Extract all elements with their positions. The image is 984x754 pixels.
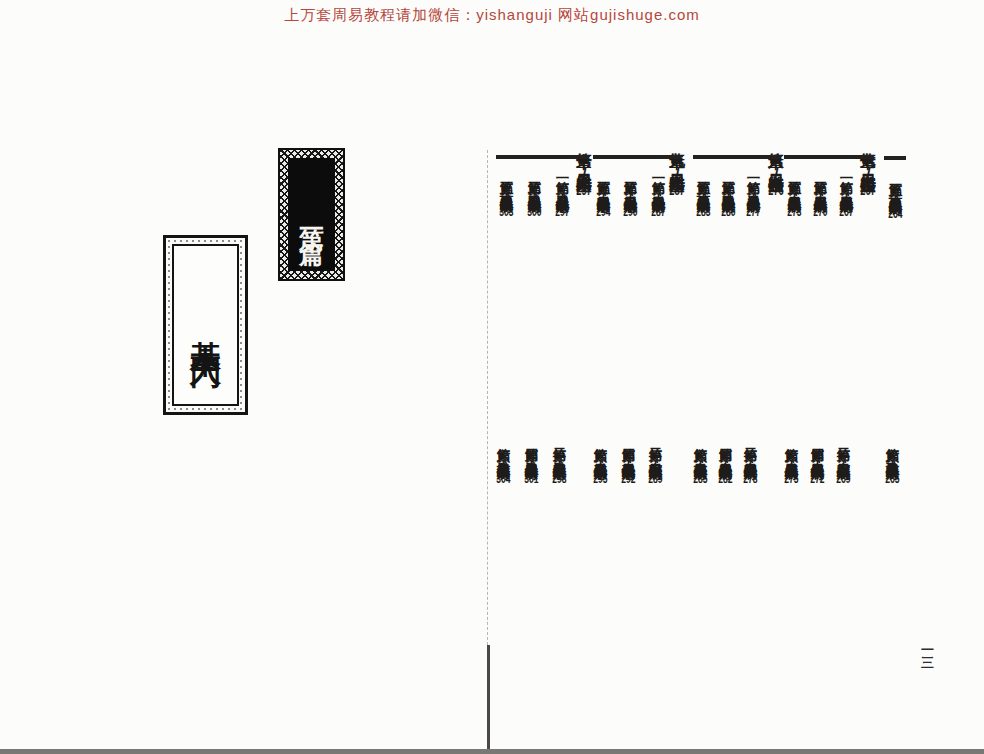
toc-section-column: 第六節己亥日生與十二時辰/265 (882, 437, 902, 485)
entry-label: 第八章 (768, 140, 785, 142)
entry-page-number: 273 (787, 205, 802, 218)
label-title-gap (817, 439, 818, 452)
label-title-gap (895, 174, 896, 187)
basic-intro-title: 基本入門 (190, 310, 221, 340)
toc-section-column: 第六節癸亥日生與十二時辰/304 (493, 437, 513, 485)
toc-section-column: 第一節庚子日生與十二時辰/267 (836, 170, 856, 218)
entry-slash: / (784, 456, 799, 472)
label-title-gap (603, 172, 604, 185)
entry-slash: / (524, 456, 539, 472)
label-title-gap (600, 439, 601, 452)
entry-slash: / (596, 189, 611, 205)
toc-section-column: 第二節壬寅日生與十二時辰/289 (645, 437, 665, 485)
entry-page-number: 292 (621, 472, 636, 485)
entry-label: 第四節 (810, 437, 825, 439)
section-bracket-rule (784, 155, 872, 159)
label-title-gap (700, 439, 701, 452)
entry-label: 第六節 (885, 437, 900, 439)
page-fold-line-bottom (487, 645, 490, 754)
toc-section-column: 第二節癸卯日生與十二時辰/298 (549, 437, 569, 485)
part-one-seal-box: 第一篇 (278, 148, 345, 281)
entry-label: 第一節 (651, 170, 666, 172)
entry-label: 第六節 (593, 437, 608, 439)
label-title-gap (655, 439, 656, 452)
entry-label: 第五節 (888, 172, 903, 174)
promo-header-text: 上万套周易教程请加微信：yishanguji 网站gujishuge.com (0, 6, 984, 25)
toc-section-column: 第五節庚申日生與十二時辰/273 (784, 170, 804, 218)
toc-section-column: 第二節庚寅日生與十二時辰/269 (833, 437, 853, 485)
entry-label: 第五節 (696, 170, 711, 172)
toc-chapter-column: 第九章日元壬水與生時/287 (666, 140, 688, 197)
toc-chapter-column: 第十章日元癸水與生時/297 (573, 140, 595, 197)
label-title-gap (728, 172, 729, 185)
toc-section-column: 第四節壬午日生與十二時辰/292 (618, 437, 638, 485)
entry-slash: / (693, 456, 708, 472)
entry-label: 第九章 (669, 140, 686, 142)
entry-page-number: 278 (743, 472, 758, 485)
label-title-gap (791, 439, 792, 452)
entry-label: 第二節 (648, 437, 663, 439)
part-one-seal-inner: 第一篇 (288, 158, 335, 271)
entry-page-number: 272 (810, 472, 825, 485)
toc-section-column: 第六節庚戌日生與十二時辰/275 (781, 437, 801, 485)
label-title-gap (703, 172, 704, 185)
entry-label: 第三節 (527, 170, 542, 172)
toc-section-column: 第五節辛酉日生與十二時辰/283 (693, 170, 713, 218)
label-title-gap (892, 439, 893, 452)
label-title-gap (562, 172, 563, 185)
entry-page-number: 275 (784, 472, 799, 485)
entry-label: 第六節 (693, 437, 708, 439)
entry-label: 第三節 (623, 170, 638, 172)
entry-page-number: 295 (593, 472, 608, 485)
entry-label: 第三節 (813, 170, 828, 172)
entry-label: 第六節 (496, 437, 511, 439)
carryover-bracket-mark (884, 156, 906, 160)
page-fold-line (487, 150, 488, 645)
entry-slash: / (787, 189, 802, 205)
entry-label: 第四節 (524, 437, 539, 439)
label-title-gap (559, 439, 560, 452)
entry-slash: / (746, 189, 761, 205)
entry-page-number: 280 (721, 205, 736, 218)
entry-slash: / (593, 456, 608, 472)
entry-page-number: 285 (693, 472, 708, 485)
entry-page-number: 270 (813, 205, 828, 218)
basic-intro-box-inner: 基本入門 (172, 244, 239, 406)
entry-page-number: 297 (555, 205, 570, 218)
entry-slash: / (721, 189, 736, 205)
label-title-gap (753, 172, 754, 185)
label-title-gap (630, 172, 631, 185)
entry-page-number: 298 (552, 472, 567, 485)
entry-slash: / (621, 456, 636, 472)
basic-intro-box: 基本入門 (163, 235, 248, 415)
entry-page-number: 267 (860, 183, 876, 197)
entry-page-number: 294 (596, 205, 611, 218)
entry-page-number: 304 (496, 472, 511, 485)
toc-section-column: 第三節辛巳日生與十二時辰/280 (718, 170, 738, 218)
folio-page-number: 一三 (918, 642, 936, 650)
entry-slash: / (839, 189, 854, 205)
entry-slash: / (623, 189, 638, 205)
entry-slash: / (813, 189, 828, 205)
label-title-gap (658, 172, 659, 185)
entry-label: 第五節 (596, 170, 611, 172)
entry-slash: / (576, 165, 593, 183)
label-title-gap (534, 172, 535, 185)
entry-label: 第五節 (499, 170, 514, 172)
entry-slash: / (555, 189, 570, 205)
entry-page-number: 276 (768, 183, 784, 197)
section-bracket-rule (496, 155, 589, 159)
entry-page-number: 300 (527, 205, 542, 218)
label-title-gap (503, 439, 504, 452)
toc-section-column: 第四節庚午日生與十二時辰/272 (807, 437, 827, 485)
label-title-gap (750, 439, 751, 452)
toc-section-column: 第六節辛亥日生與十二時辰/285 (690, 437, 710, 485)
entry-label: 第一節 (746, 170, 761, 172)
entry-label: 第五節 (787, 170, 802, 172)
entry-label: 第四節 (718, 437, 733, 439)
entry-slash: / (768, 165, 785, 183)
label-title-gap (794, 172, 795, 185)
section-bracket-rule (593, 155, 681, 159)
entry-slash: / (888, 191, 903, 207)
entry-slash: / (527, 189, 542, 205)
toc-section-column: 第一節癸丑日生與十二時辰/297 (552, 170, 572, 218)
label-title-gap (820, 172, 821, 185)
entry-label: 第七章 (860, 140, 877, 142)
entry-page-number: 297 (576, 183, 592, 197)
toc-section-column: 第五節癸酉日生與十二時辰/303 (496, 170, 516, 218)
toc-section-column: 第四節辛未日生與十二時辰/282 (715, 437, 735, 485)
entry-label: 第二節 (743, 437, 758, 439)
entry-page-number: 287 (651, 205, 666, 218)
entry-slash: / (743, 456, 758, 472)
entry-slash: / (648, 456, 663, 472)
entry-slash: / (496, 456, 511, 472)
entry-label: 第一節 (555, 170, 570, 172)
entry-page-number: 303 (499, 205, 514, 218)
toc-section-column: 第四節癸未日生與十二時辰/301 (521, 437, 541, 485)
entry-slash: / (669, 165, 686, 183)
toc-section-column: 第六節壬戌日生與十二時辰/295 (590, 437, 610, 485)
entry-slash: / (552, 456, 567, 472)
toc-section-column: 第五節壬申日生與十二時辰/294 (593, 170, 613, 218)
toc-section-column: 第二節辛卯日生與十二時辰/278 (740, 437, 760, 485)
toc-section-column: 第一節壬子日生與十二時辰/287 (648, 170, 668, 218)
entry-label: 第一節 (839, 170, 854, 172)
toc-chapter-column: 第八章日元辛金與生時/276 (765, 140, 787, 197)
entry-slash: / (810, 456, 825, 472)
entry-slash: / (885, 456, 900, 472)
entry-page-number: 277 (746, 205, 761, 218)
label-title-gap (506, 172, 507, 185)
entry-page-number: 301 (524, 472, 539, 485)
entry-slash: / (696, 189, 711, 205)
toc-section-column: 第三節壬辰日生與十二時辰/290 (620, 170, 640, 218)
label-title-gap (843, 439, 844, 452)
label-title-gap (725, 439, 726, 452)
entry-slash: / (718, 456, 733, 472)
entry-label: 第四節 (621, 437, 636, 439)
entry-page-number: 269 (836, 472, 851, 485)
entry-page-number: 283 (696, 205, 711, 218)
entry-page-number: 290 (623, 205, 638, 218)
label-title-gap (531, 439, 532, 452)
toc-section-column: 第三節癸巳日生與十二時辰/300 (524, 170, 544, 218)
entry-page-number: 264 (888, 207, 903, 220)
label-title-gap (628, 439, 629, 452)
entry-page-number: 282 (718, 472, 733, 485)
entry-label: 第二節 (836, 437, 851, 439)
scan-bottom-edge (0, 749, 984, 754)
entry-label: 第二節 (552, 437, 567, 439)
toc-chapter-column: 第七章日元庚金與生時/267 (857, 140, 879, 197)
section-bracket-rule (693, 155, 781, 159)
entry-label: 第六節 (784, 437, 799, 439)
entry-slash: / (836, 456, 851, 472)
entry-page-number: 267 (839, 205, 854, 218)
entry-page-number: 265 (885, 472, 900, 485)
label-title-gap (846, 172, 847, 185)
toc-section-column: 第三節庚辰日生與十二時辰/270 (810, 170, 830, 218)
scanned-book-spread: 上万套周易教程请加微信：yishanguji 网站gujishuge.com 第… (0, 0, 984, 754)
entry-page-number: 289 (648, 472, 663, 485)
entry-label: 第三節 (721, 170, 736, 172)
toc-section-column: 第一節辛丑日生與十二時辰/277 (743, 170, 763, 218)
toc-section-column: 第五節己酉日生與十二時辰/264 (885, 172, 905, 220)
part-one-label: 第一篇 (299, 201, 324, 229)
entry-label: 第十章 (576, 140, 593, 142)
entry-slash: / (860, 165, 877, 183)
entry-slash: / (651, 189, 666, 205)
entry-slash: / (499, 189, 514, 205)
entry-page-number: 287 (669, 183, 685, 197)
